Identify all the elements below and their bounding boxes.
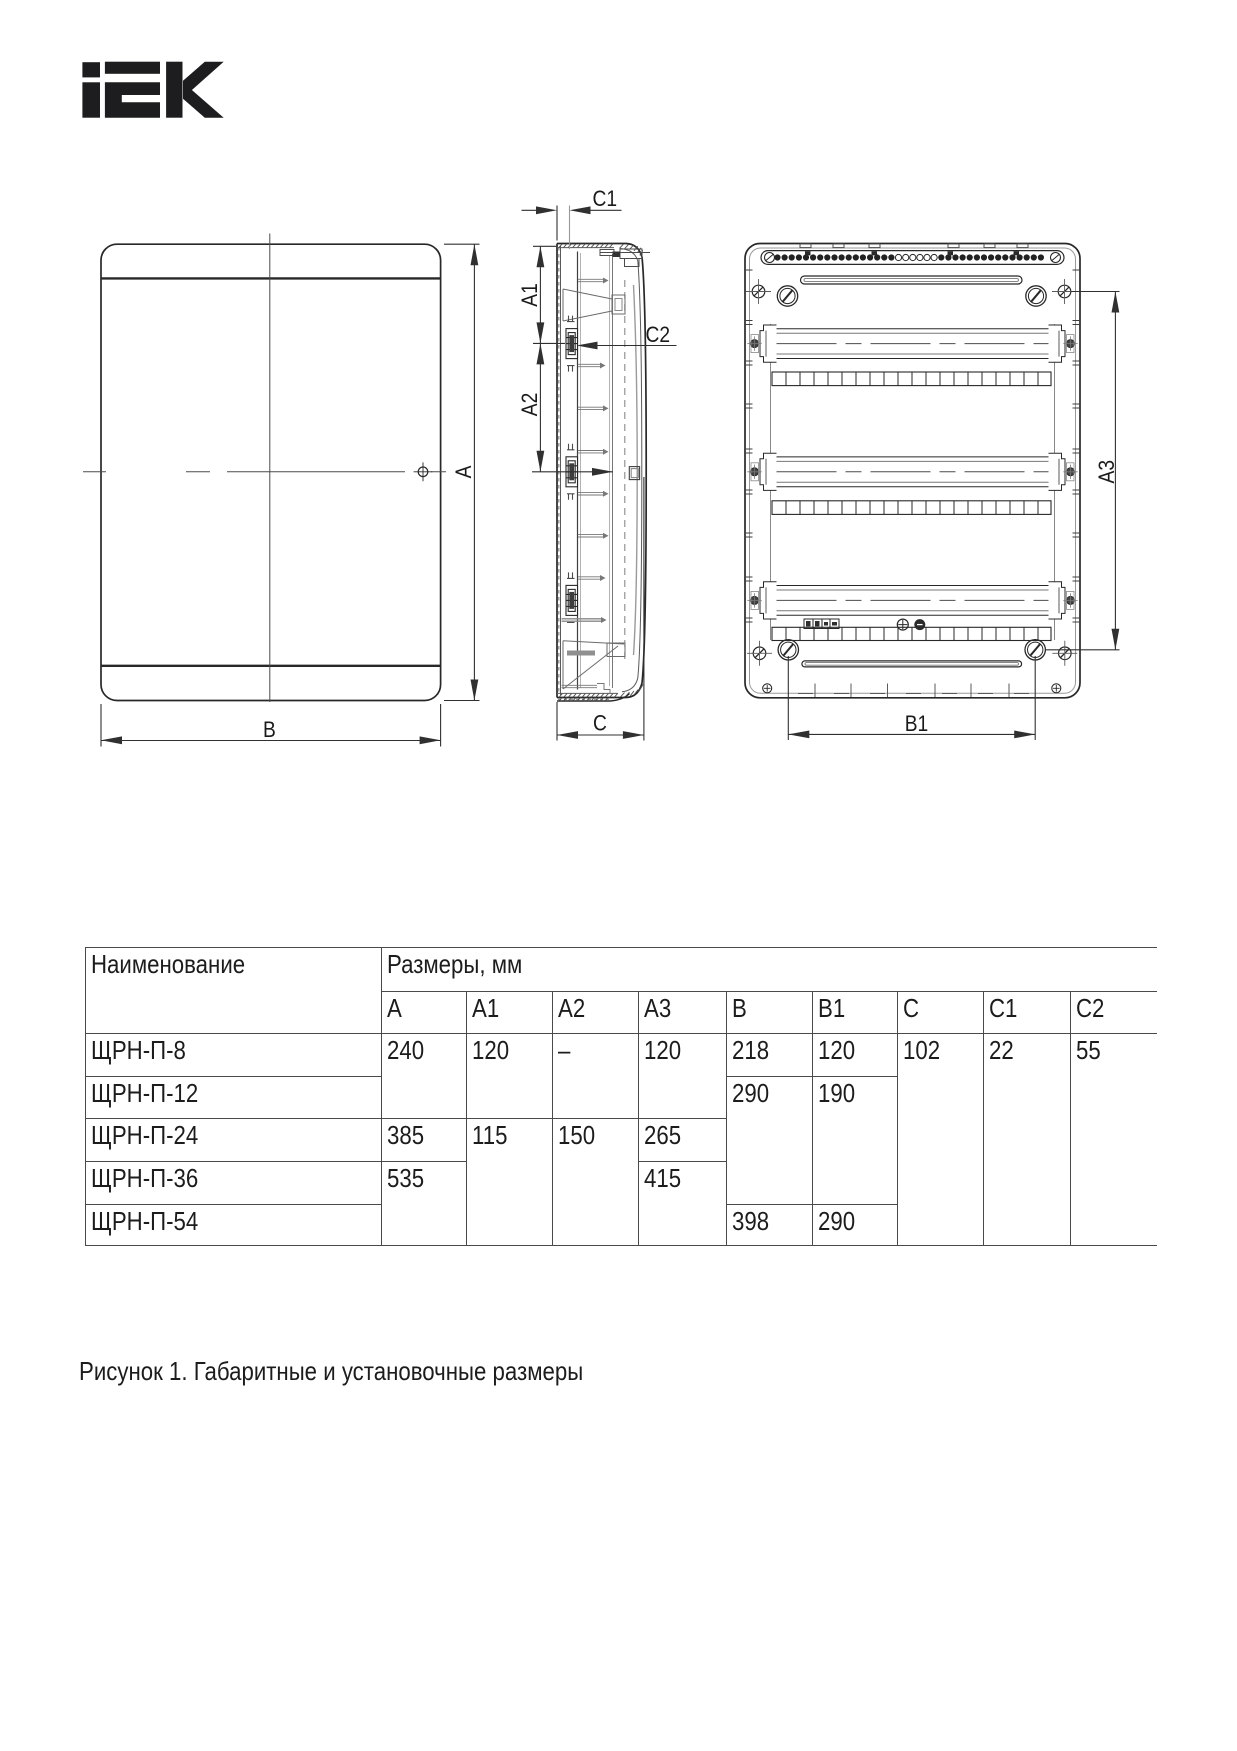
svg-text:A1: A1 [517,283,542,307]
svg-text:B1: B1 [905,712,929,737]
svg-text:A: A [452,466,477,479]
svg-text:C: C [593,711,607,736]
svg-text:C2: C2 [646,323,671,348]
svg-text:A2: A2 [517,393,542,417]
svg-text:A3: A3 [1094,460,1119,484]
svg-text:B: B [263,718,276,743]
svg-text:C1: C1 [593,187,618,212]
